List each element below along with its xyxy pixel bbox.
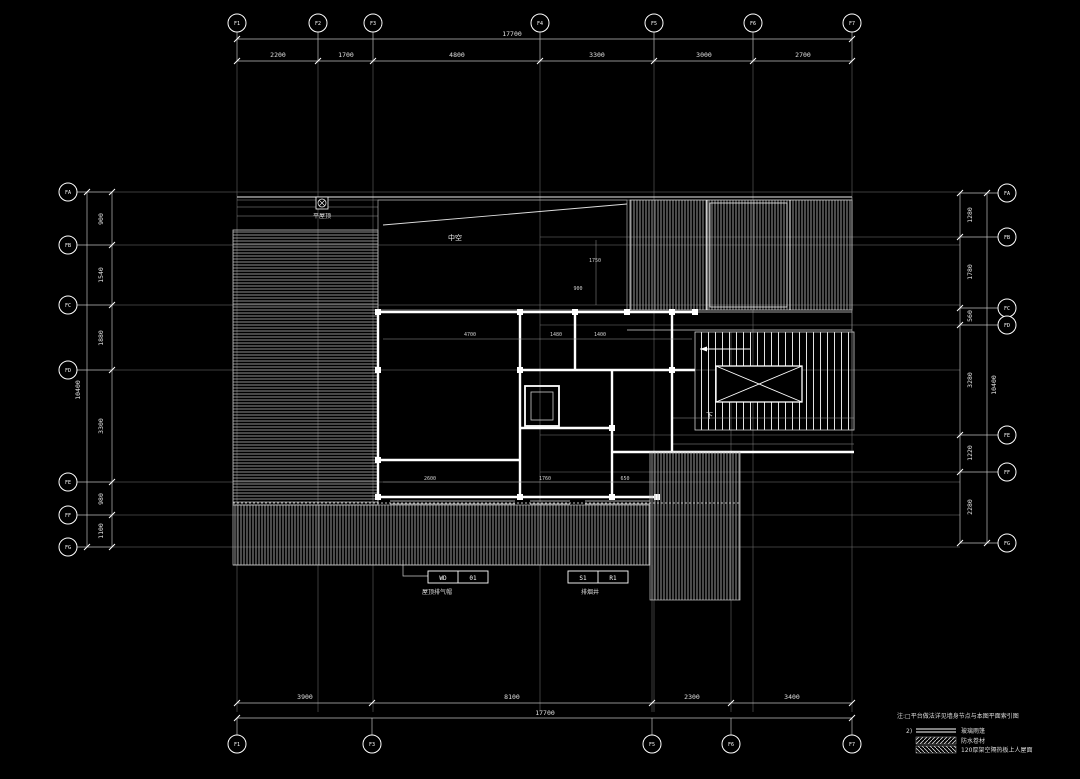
dim-left-seg-5: 980 bbox=[97, 493, 105, 505]
dim-bottom-seg-3: 2300 bbox=[684, 693, 700, 701]
svg-text:F3: F3 bbox=[370, 21, 376, 27]
dim-bottom-seg-4: 3400 bbox=[784, 693, 800, 701]
grid-bubble-right-2: FB bbox=[998, 228, 1016, 246]
svg-text:F6: F6 bbox=[750, 21, 756, 27]
grid-bubble-left-5: FE bbox=[59, 473, 77, 491]
interior-dim-7: 1760 bbox=[539, 476, 551, 482]
grid-bubble-right-1: FA bbox=[998, 184, 1016, 202]
left-roof-hatch bbox=[233, 230, 378, 505]
svg-text:F7: F7 bbox=[849, 742, 855, 748]
grid-bubble-left-4: FD bbox=[59, 361, 77, 379]
interior-dim-2: 900 bbox=[573, 286, 582, 292]
svg-text:FG: FG bbox=[1004, 541, 1010, 547]
svg-text:FC: FC bbox=[1004, 306, 1010, 312]
grid-bubble-bottom-3: F5 bbox=[643, 735, 661, 753]
svg-text:FF: FF bbox=[65, 513, 71, 519]
dim-top-seg-3: 4800 bbox=[449, 51, 465, 59]
svg-text:FA: FA bbox=[1004, 191, 1010, 197]
svg-text:FE: FE bbox=[1004, 433, 1010, 439]
atrium-label: 中空 bbox=[448, 233, 462, 242]
grid-bubble-bottom-4: F6 bbox=[722, 735, 740, 753]
grid-bubble-top-3: F3 bbox=[364, 14, 382, 32]
svg-text:F5: F5 bbox=[649, 742, 655, 748]
svg-text:F2: F2 bbox=[315, 21, 321, 27]
legend-item-1-no: 2) bbox=[906, 728, 912, 735]
legend-item-3-label: 120厚架空隔热板上人屋面 bbox=[961, 746, 1032, 754]
grid-bubble-right-5: FE bbox=[998, 426, 1016, 444]
grid-bubble-right-7: FG bbox=[998, 534, 1016, 552]
dim-top-seg-5: 3000 bbox=[696, 51, 712, 59]
dim-bottom-overall: 17700 bbox=[535, 709, 555, 717]
grid-bubble-bottom-1: F1 bbox=[228, 735, 246, 753]
interior-dim-3: 4700 bbox=[464, 332, 476, 338]
grid-bubble-top-7: F7 bbox=[843, 14, 861, 32]
svg-text:F5: F5 bbox=[651, 21, 657, 27]
svg-text:FG: FG bbox=[65, 545, 71, 551]
svg-text:FE: FE bbox=[65, 480, 71, 486]
callout-sr-code: S1 bbox=[579, 575, 587, 582]
interior-dim-4: 1480 bbox=[550, 332, 562, 338]
interior-dim-8: 650 bbox=[620, 476, 629, 482]
legend-hatch-symbol-1 bbox=[916, 737, 956, 744]
svg-text:F7: F7 bbox=[849, 21, 855, 27]
dim-bottom-seg-2: 8100 bbox=[504, 693, 520, 701]
dim-right-seg-6: 2280 bbox=[966, 499, 974, 515]
svg-text:F1: F1 bbox=[234, 742, 240, 748]
dim-bottom-seg-1: 3900 bbox=[297, 693, 313, 701]
dim-left-overall: 10400 bbox=[74, 380, 82, 400]
dim-right-seg-2: 1780 bbox=[966, 264, 974, 280]
grid-bubble-left-6: FF bbox=[59, 506, 77, 524]
grid-bubble-bottom-5: F7 bbox=[843, 735, 861, 753]
grid-bubble-right-6: FF bbox=[998, 463, 1016, 481]
dim-top-seg-1: 2200 bbox=[270, 51, 286, 59]
callout-sr-num: R1 bbox=[609, 575, 617, 582]
cad-viewport: 17700 2200 1700 4800 3300 3000 2700 3900… bbox=[0, 0, 1080, 779]
svg-text:FB: FB bbox=[1004, 235, 1010, 241]
svg-text:FD: FD bbox=[1004, 323, 1010, 329]
dim-top-seg-6: 2700 bbox=[795, 51, 811, 59]
dim-right-seg-5: 1220 bbox=[966, 445, 974, 461]
dim-top-overall: 17700 bbox=[502, 30, 522, 38]
svg-text:F6: F6 bbox=[728, 742, 734, 748]
grid-bubble-right-4: FD bbox=[998, 316, 1016, 334]
callout-sr-label: 排烟井 bbox=[581, 588, 599, 596]
legend-note: 注:□平台做法详见墙身节点与本图平面索引图 bbox=[897, 712, 1019, 720]
interior-dim-5: 1400 bbox=[594, 332, 606, 338]
callout-wd-num: 01 bbox=[469, 575, 477, 582]
interior-dim-1: 1750 bbox=[589, 258, 601, 264]
dim-right-overall: 10400 bbox=[990, 375, 998, 395]
grid-bubble-top-2: F2 bbox=[309, 14, 327, 32]
grid-bubble-top-6: F6 bbox=[744, 14, 762, 32]
legend-item-2-label: 防水卷材 bbox=[961, 737, 985, 745]
dim-left-seg-3: 1880 bbox=[97, 330, 105, 346]
dim-left-seg-1: 900 bbox=[97, 213, 105, 225]
svg-text:FD: FD bbox=[65, 368, 71, 374]
stair-down-label: 下 bbox=[706, 412, 713, 420]
callout-wd-label: 屋顶排气帽 bbox=[422, 588, 452, 596]
legend-hatch-symbol-2 bbox=[916, 746, 956, 753]
dim-right-seg-1: 1280 bbox=[966, 207, 974, 223]
svg-text:FC: FC bbox=[65, 303, 71, 309]
dim-top-seg-4: 3300 bbox=[589, 51, 605, 59]
floorplan-canvas: 17700 2200 1700 4800 3300 3000 2700 3900… bbox=[0, 0, 1080, 779]
grid-bubble-top-4: F4 bbox=[531, 14, 549, 32]
stairwell: 下 bbox=[672, 332, 854, 444]
grid-bubble-bottom-2: F3 bbox=[363, 735, 381, 753]
flat-roof-symbol: 平屋顶 bbox=[313, 197, 331, 220]
dim-right-seg-3: 560 bbox=[966, 310, 974, 322]
dim-left-seg-4: 3300 bbox=[97, 418, 105, 434]
grid-bubble-right-3: FC bbox=[998, 299, 1016, 317]
svg-text:FF: FF bbox=[1004, 470, 1010, 476]
grid-bubble-top-5: F5 bbox=[645, 14, 663, 32]
interior-dim-6: 2600 bbox=[424, 476, 436, 482]
svg-text:F1: F1 bbox=[234, 21, 240, 27]
grid-bubble-left-7: FG bbox=[59, 538, 77, 556]
dim-right-seg-4: 3280 bbox=[966, 372, 974, 388]
svg-text:FA: FA bbox=[65, 190, 71, 196]
svg-text:F4: F4 bbox=[537, 21, 543, 27]
dim-left-seg-6: 1100 bbox=[97, 523, 105, 539]
grid-bubble-left-2: FB bbox=[59, 236, 77, 254]
dim-left-seg-2: 1540 bbox=[97, 267, 105, 283]
grid-bubble-top-1: F1 bbox=[228, 14, 246, 32]
svg-text:FB: FB bbox=[65, 243, 71, 249]
callout-wd-code: WD bbox=[439, 575, 447, 582]
dim-top-seg-2: 1700 bbox=[338, 51, 354, 59]
flat-roof-label: 平屋顶 bbox=[313, 213, 331, 220]
grid-bubble-left-3: FC bbox=[59, 296, 77, 314]
legend-item-1-label: 玻璃雨篷 bbox=[961, 727, 985, 735]
grid-bubble-left-1: FA bbox=[59, 183, 77, 201]
svg-text:F3: F3 bbox=[369, 742, 375, 748]
